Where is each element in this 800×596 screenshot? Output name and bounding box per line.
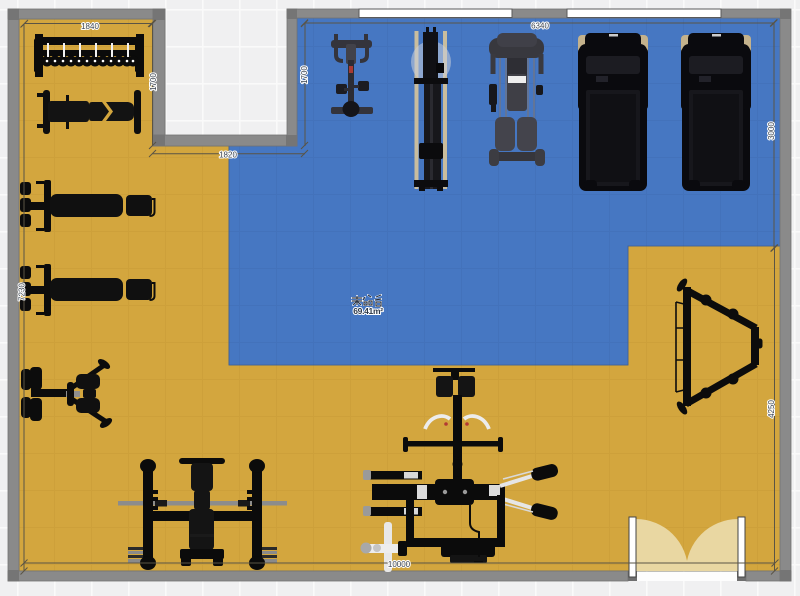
svg-text:3000: 3000 bbox=[767, 122, 776, 140]
svg-text:4250: 4250 bbox=[767, 400, 776, 418]
svg-text:10000: 10000 bbox=[388, 560, 411, 569]
svg-text:1700: 1700 bbox=[300, 66, 309, 84]
svg-text:1840: 1840 bbox=[81, 22, 99, 31]
svg-text:1700: 1700 bbox=[149, 73, 158, 91]
svg-text:1820: 1820 bbox=[219, 151, 237, 160]
svg-text:7230: 7230 bbox=[18, 283, 27, 301]
svg-text:6340: 6340 bbox=[531, 22, 549, 31]
svg-text:69.41m²: 69.41m² bbox=[353, 306, 383, 316]
